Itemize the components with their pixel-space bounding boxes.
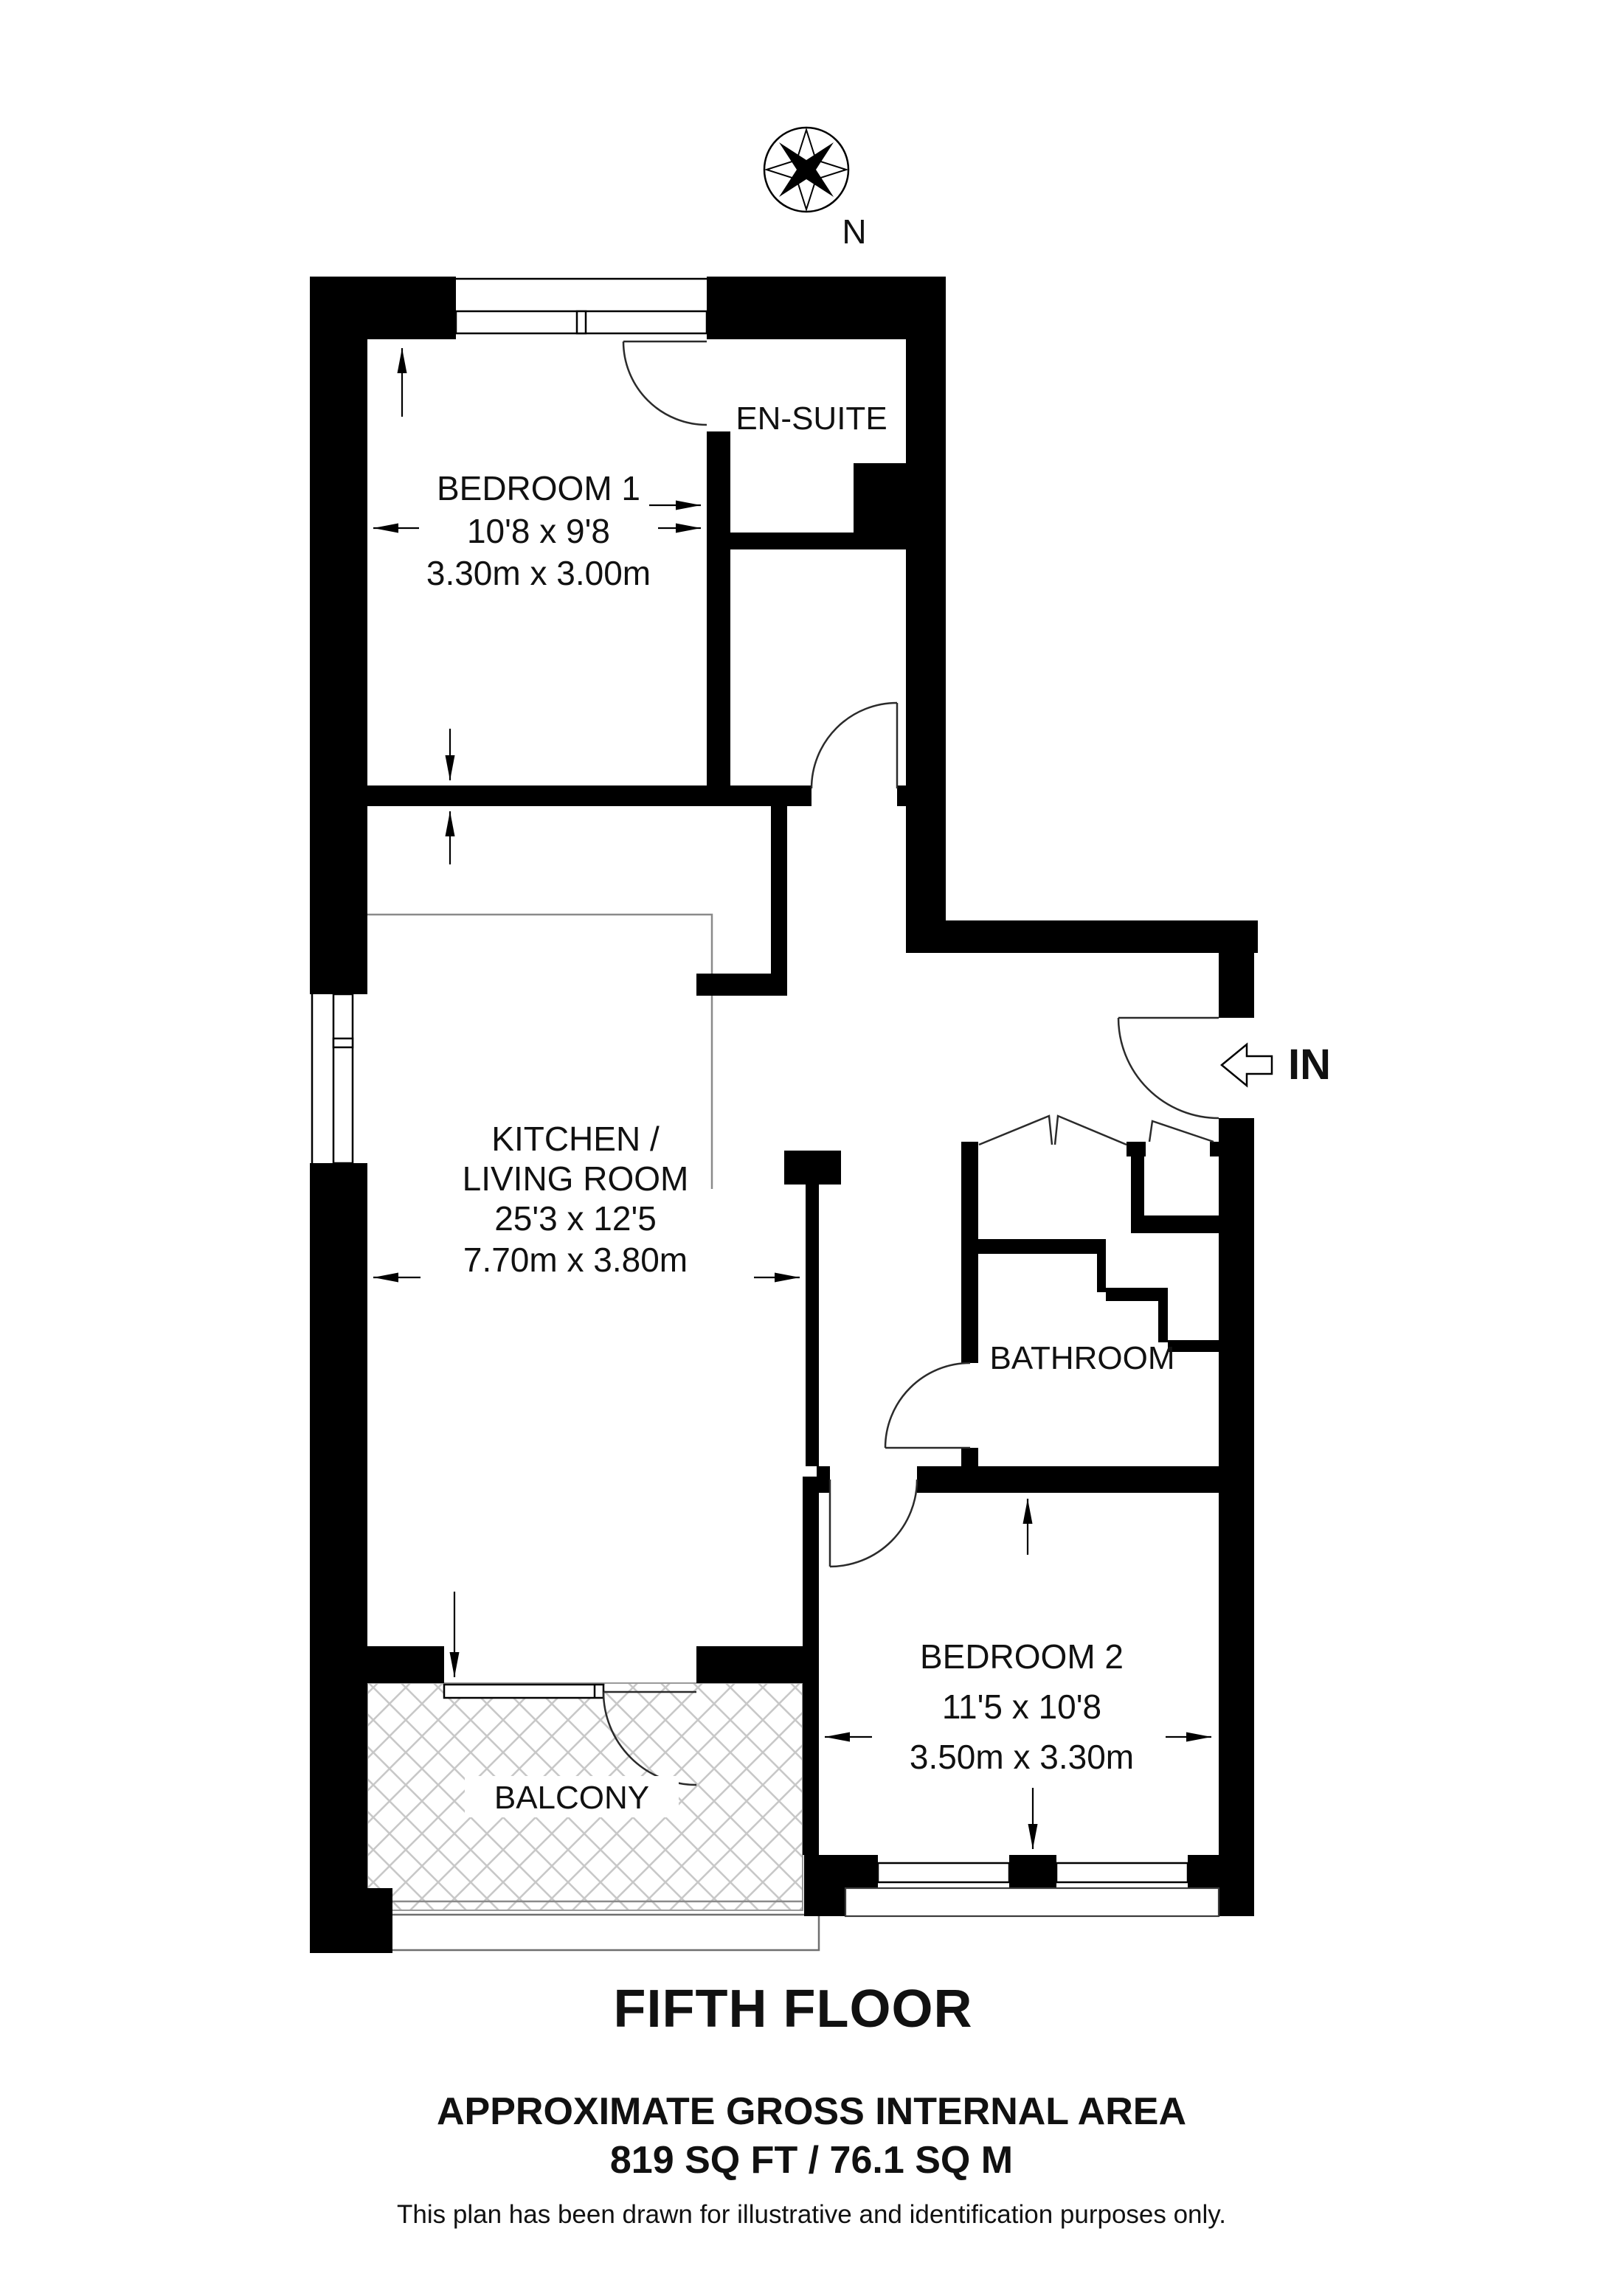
kitchen-dims-ft: 25'3 x 12'5 bbox=[494, 1199, 657, 1238]
bedroom2-window-outer-band bbox=[845, 1888, 1219, 1916]
floor-title: FIFTH FLOOR bbox=[614, 1980, 973, 2039]
compass-north-label: N bbox=[842, 212, 866, 251]
bedroom1-name: BEDROOM 1 bbox=[437, 469, 640, 507]
kitchen-name-line2: LIVING ROOM bbox=[463, 1159, 689, 1198]
wall-ensuite-left bbox=[707, 431, 730, 785]
wall-ensuite-bottom bbox=[707, 533, 906, 549]
floor-plan-svg: N IN BEDROOM 1 10'8 x 9'8 3.30m x 3.00m … bbox=[0, 0, 1623, 2296]
wall-bathroom-step2 bbox=[1158, 1301, 1168, 1342]
bedroom1-window bbox=[456, 277, 707, 339]
wall-kitchen-hall-divider bbox=[806, 1185, 819, 1466]
bedroom1-dims-ft: 10'8 x 9'8 bbox=[467, 512, 610, 550]
area-value: 819 SQ FT / 76.1 SQ M bbox=[610, 2139, 1013, 2182]
kitchen-window bbox=[310, 994, 367, 1163]
bedroom2-dims-m: 3.50m x 3.30m bbox=[910, 1738, 1134, 1776]
bedroom2-dims-ft: 11'5 x 10'8 bbox=[942, 1688, 1101, 1726]
balcony-slider-window bbox=[444, 1685, 603, 1698]
balcony-name: BALCONY bbox=[494, 1780, 649, 1816]
wall-closet-divider bbox=[1131, 1154, 1144, 1215]
wall-bathroom-top-left bbox=[961, 1239, 1106, 1254]
wall-lobby-stub bbox=[817, 1466, 830, 1493]
kitchen-name-line1: KITCHEN / bbox=[491, 1120, 660, 1158]
wall-entry-jamb-upper bbox=[1219, 953, 1254, 1018]
kitchen-dims-m: 7.70m x 3.80m bbox=[463, 1241, 688, 1279]
wall-bottom-left-block bbox=[310, 1888, 392, 1953]
page-background bbox=[0, 0, 1623, 2296]
bathroom-name: BATHROOM bbox=[990, 1340, 1175, 1376]
wall-hall-top bbox=[946, 920, 1258, 953]
bedroom2-window-right bbox=[1056, 1855, 1188, 1888]
balcony-slab bbox=[333, 1915, 819, 1950]
wall-closet-right-bottom bbox=[1131, 1215, 1223, 1233]
wall-right-upper bbox=[906, 277, 946, 953]
disclaimer-text: This plan has been drawn for illustrativ… bbox=[397, 2200, 1226, 2229]
floorplan-page: N IN BEDROOM 1 10'8 x 9'8 3.30m x 3.00m … bbox=[0, 0, 1623, 2296]
wall-bathroom-top-mid bbox=[1106, 1288, 1168, 1301]
wall-kitchen-bottom-right bbox=[696, 1646, 804, 1683]
wall-bathroom-left-stub bbox=[961, 1448, 978, 1466]
wall-ensuite-notch bbox=[854, 463, 906, 533]
bedroom2-window-left bbox=[878, 1855, 1009, 1888]
wall-bathroom-bottom bbox=[917, 1466, 1219, 1493]
in-label: IN bbox=[1288, 1041, 1331, 1089]
wall-bedroom2-bottom-left-block bbox=[804, 1855, 845, 1916]
wall-corridor-kitchen bbox=[771, 806, 787, 977]
wall-bedroom1-kitchen bbox=[367, 785, 811, 806]
wall-right-lower bbox=[1219, 1118, 1254, 1916]
wall-bathroom-top-right bbox=[1168, 1340, 1219, 1352]
bedroom1-dims-m: 3.30m x 3.00m bbox=[426, 554, 651, 592]
wall-bathroom-step1 bbox=[1097, 1254, 1106, 1292]
wall-closet-right-jamb bbox=[1210, 1142, 1222, 1156]
wall-bedroom2-left bbox=[803, 1477, 819, 1855]
wall-bedroom1-door-stub bbox=[897, 785, 909, 806]
wall-kitchen-bottom-left bbox=[367, 1646, 444, 1683]
bedroom2-name: BEDROOM 2 bbox=[920, 1637, 1124, 1676]
ensuite-name: EN-SUITE bbox=[736, 400, 887, 437]
wall-kitchen-pillar bbox=[784, 1151, 841, 1185]
area-heading: APPROXIMATE GROSS INTERNAL AREA bbox=[437, 2090, 1186, 2133]
wall-corridor-foot bbox=[696, 974, 787, 996]
